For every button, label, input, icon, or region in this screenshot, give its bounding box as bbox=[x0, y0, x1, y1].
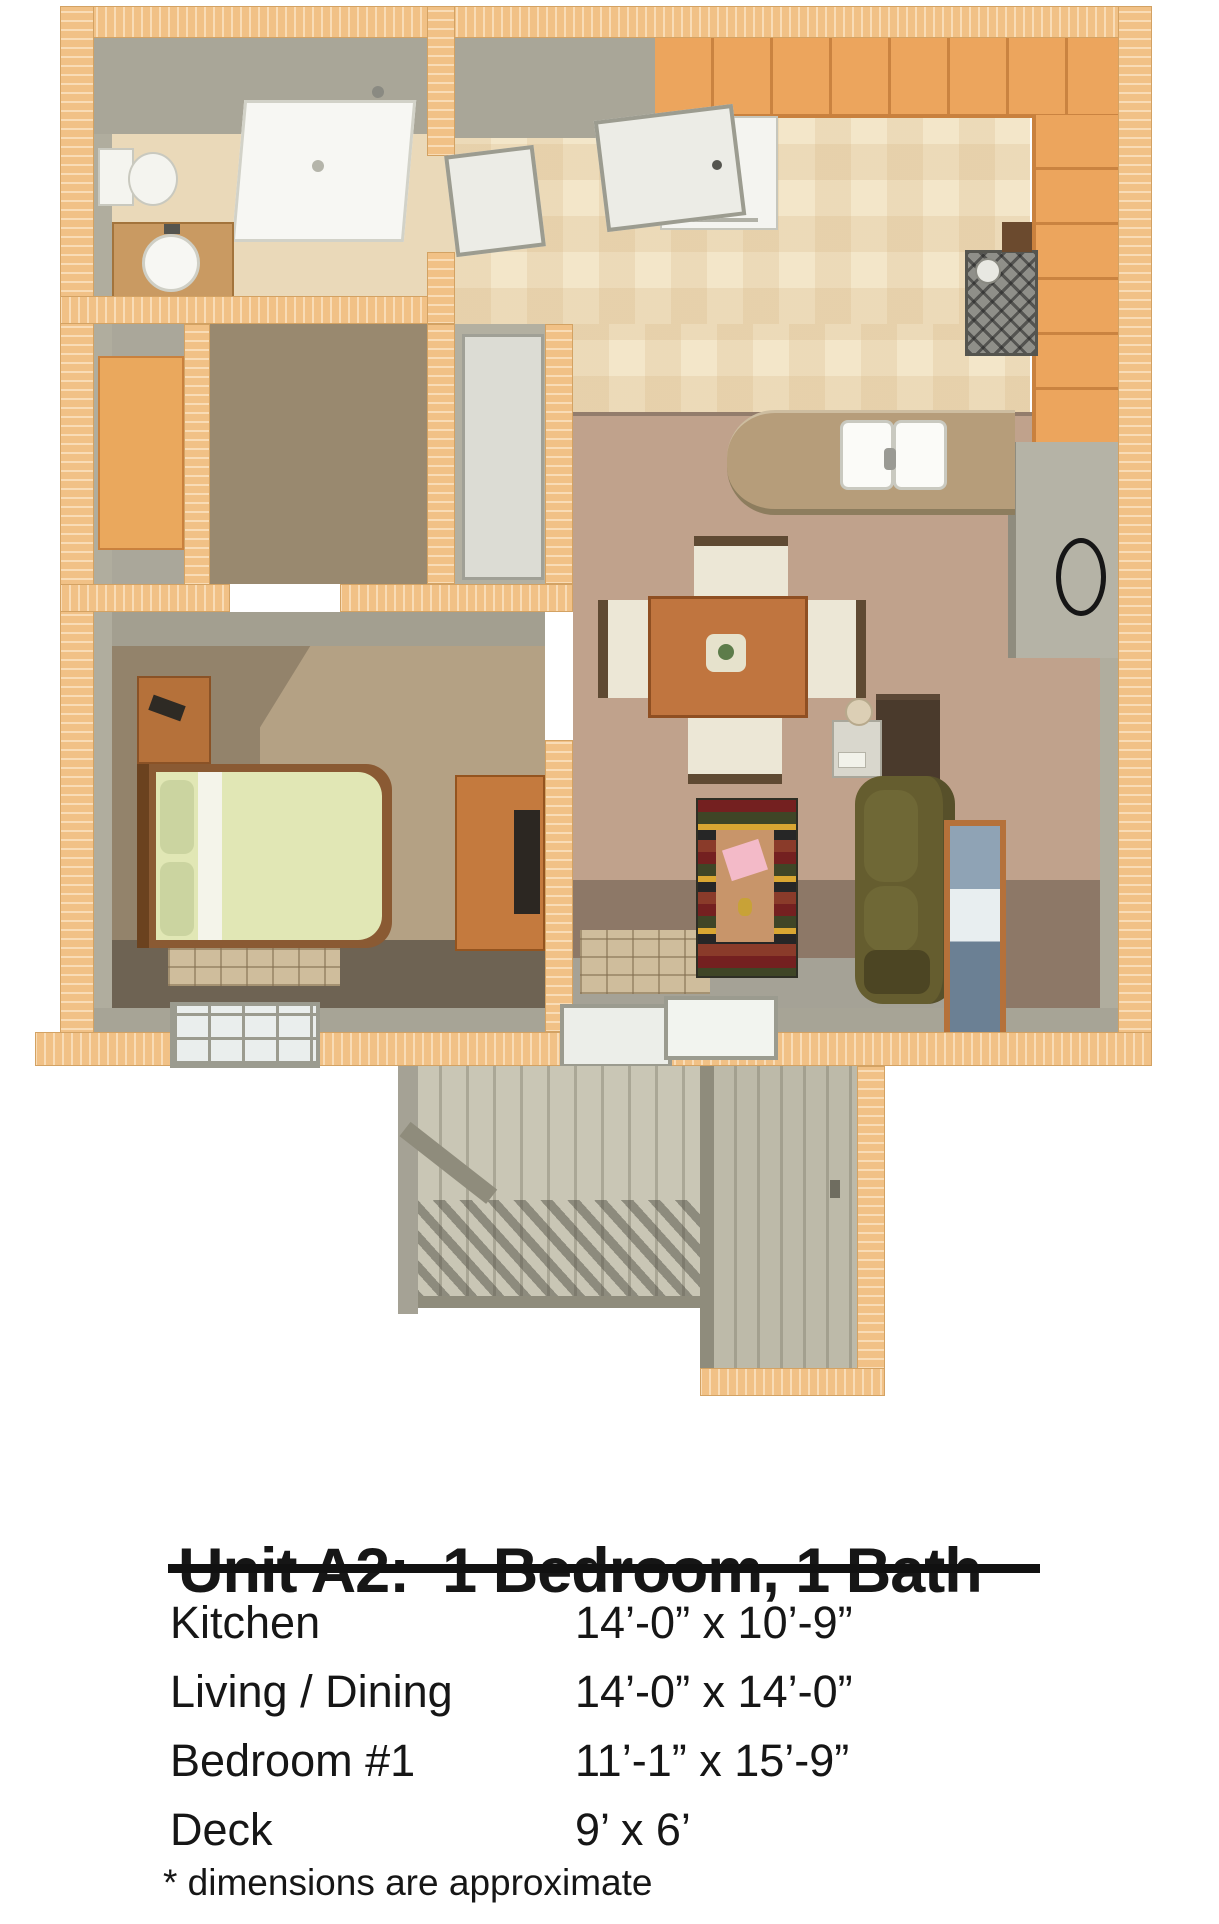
storage-wall-east bbox=[857, 1066, 885, 1396]
bed-pillow-top bbox=[160, 780, 194, 854]
deck-edge-rail bbox=[415, 1296, 700, 1308]
wall-bathroom-south bbox=[60, 296, 455, 324]
bed-pillow-bottom bbox=[160, 862, 194, 936]
bedroom-north-wall-face bbox=[94, 612, 545, 646]
bed-linen-stripe bbox=[198, 772, 222, 940]
nightstand bbox=[137, 676, 211, 764]
wall-right bbox=[1118, 6, 1152, 1066]
tv-cabinet bbox=[876, 694, 940, 780]
wall-linen-closet-west bbox=[427, 324, 455, 584]
storage-closet-floor bbox=[714, 1066, 857, 1368]
wall-closet-east bbox=[184, 324, 210, 612]
deck-post-left bbox=[398, 1066, 418, 1314]
wall-bathroom-east-upper bbox=[427, 6, 455, 156]
closet-bench bbox=[98, 356, 184, 550]
desk-lamp bbox=[845, 698, 873, 726]
telephone bbox=[838, 752, 866, 768]
sliding-door-left-panel bbox=[560, 1004, 672, 1068]
wall-bathroom-east-lower bbox=[427, 252, 455, 324]
wall-bedroom-north-west bbox=[60, 584, 230, 612]
sofa-base-dark bbox=[864, 950, 930, 994]
shower bbox=[232, 100, 416, 242]
centerpiece-plant bbox=[718, 644, 734, 660]
toy-on-rug bbox=[738, 898, 752, 916]
dining-chair-south bbox=[688, 716, 782, 784]
wall-divider-upper bbox=[545, 324, 573, 584]
sofa-cushion-bottom bbox=[864, 886, 918, 952]
hall-closet-door bbox=[444, 145, 546, 257]
east-wall-face bbox=[1100, 658, 1118, 1012]
wall-bedroom-north-east bbox=[340, 584, 573, 612]
kitchen-faucet bbox=[884, 448, 896, 470]
sliding-door-right-panel bbox=[664, 996, 778, 1060]
room-label: Deck bbox=[170, 1807, 273, 1852]
room-size: 14’-0” x 14’-0” bbox=[575, 1669, 853, 1714]
dining-chair-north bbox=[694, 536, 788, 602]
dining-chair-east bbox=[800, 600, 866, 698]
shower-head bbox=[372, 86, 384, 98]
room-label: Living / Dining bbox=[170, 1669, 453, 1714]
dresser-tv bbox=[514, 810, 540, 914]
living-door-light bbox=[580, 930, 710, 994]
sofa-cushion-top bbox=[864, 790, 918, 882]
dimensions-footnote: * dimensions are approximate bbox=[163, 1864, 652, 1901]
bedroom-window bbox=[170, 1002, 320, 1068]
west-wall-face bbox=[94, 134, 112, 1012]
bed-headboard bbox=[137, 764, 149, 948]
vanity-faucet bbox=[164, 224, 180, 234]
storage-closet-divider bbox=[700, 1066, 714, 1368]
kitchen-tile-floor-lower bbox=[573, 324, 1030, 412]
room-size: 11’-1” x 15’-9” bbox=[575, 1738, 849, 1783]
entry-door bbox=[594, 104, 747, 232]
entry-door-handle bbox=[712, 160, 722, 170]
floor-plan bbox=[0, 0, 1219, 1430]
shower-drain bbox=[312, 160, 324, 172]
kitchen-sink-right-basin bbox=[893, 420, 947, 490]
linen-closet-door-panel bbox=[462, 334, 544, 580]
deck-railing-shadow bbox=[415, 1200, 700, 1300]
toilet-bowl bbox=[128, 152, 178, 206]
title-underline bbox=[168, 1564, 1040, 1573]
vanity-sink bbox=[142, 234, 200, 292]
kitchen-cabinets-right bbox=[1032, 114, 1122, 442]
storage-door-handle bbox=[830, 1180, 840, 1198]
stove-pot bbox=[975, 258, 1001, 284]
room-size: 14’-0” x 10’-9” bbox=[575, 1600, 853, 1645]
hall-carpet bbox=[210, 324, 427, 584]
room-size: 9’ x 6’ bbox=[575, 1807, 691, 1852]
spice-shelf bbox=[1002, 222, 1032, 252]
storage-wall-south bbox=[700, 1368, 885, 1396]
room-label: Bedroom #1 bbox=[170, 1738, 415, 1783]
wall-top bbox=[60, 6, 1152, 38]
wall-left bbox=[60, 6, 94, 1066]
room-label: Kitchen bbox=[170, 1600, 320, 1645]
desk bbox=[832, 720, 882, 778]
wall-mirror-oval bbox=[1056, 538, 1106, 616]
wall-divider-lower bbox=[545, 740, 573, 1032]
framed-picture bbox=[944, 820, 1006, 1042]
